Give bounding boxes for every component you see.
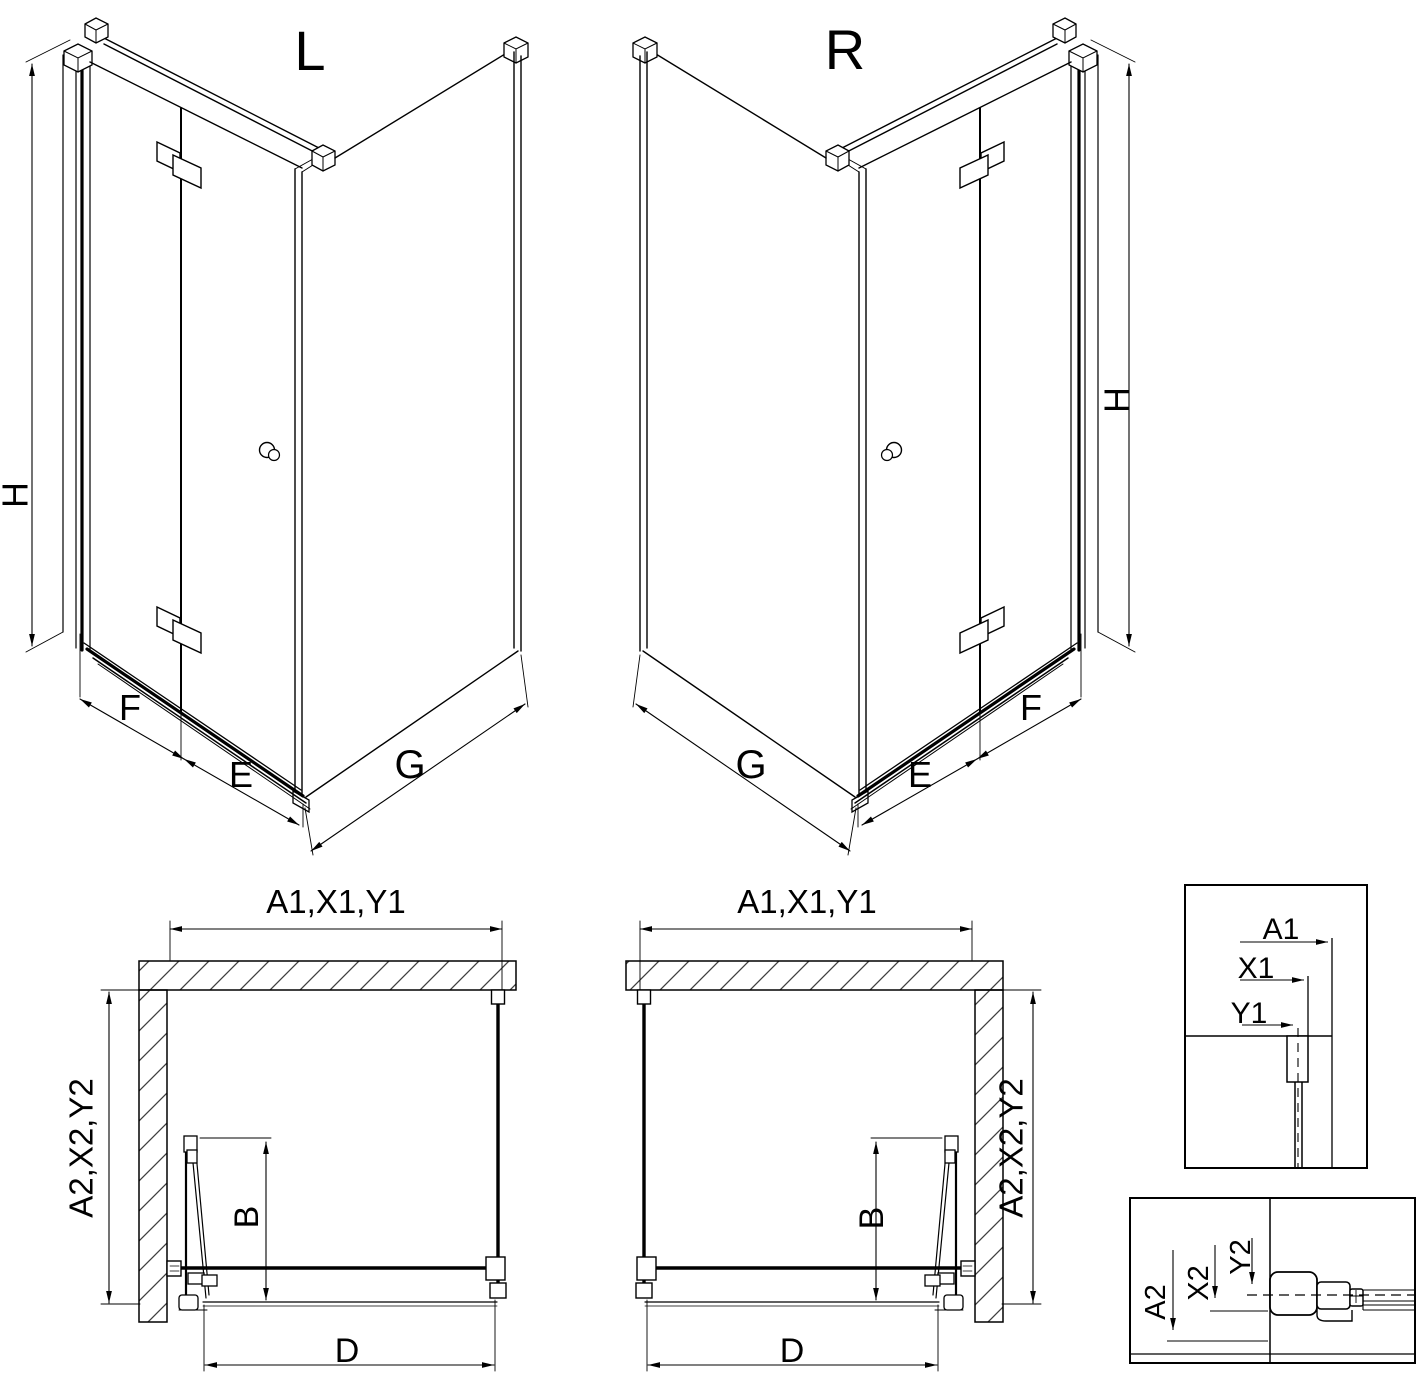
label-detail-y2: Y2 xyxy=(1225,1239,1257,1274)
label-entry-width-left: D xyxy=(335,1332,360,1370)
technical-drawing-page: L R H H F E G F E G A1,X1,Y1 A1,X1,Y1 A2… xyxy=(0,0,1426,1397)
label-door-leaf-left: F xyxy=(119,687,141,728)
label-door-projection-right: B xyxy=(853,1207,891,1230)
label-door-projection-left: B xyxy=(228,1206,266,1229)
label-detail-x1: X1 xyxy=(1238,952,1275,985)
label-detail-a1: A1 xyxy=(1263,913,1300,946)
label-plan-depth-left: A2,X2,Y2 xyxy=(63,1078,100,1217)
label-door-inner-left: E xyxy=(229,754,253,795)
label-door-inner-right: E xyxy=(908,754,932,795)
plan-right-top-wall xyxy=(626,961,1003,990)
label-entry-width-right: D xyxy=(780,1332,805,1370)
shower-enclosure-drawing: L R H H F E G F E G A1,X1,Y1 A1,X1,Y1 A2… xyxy=(0,0,1426,1397)
label-side-panel-left: G xyxy=(394,743,425,787)
detail-box-depth xyxy=(1130,1198,1415,1363)
label-plan-width-left: A1,X1,Y1 xyxy=(266,883,405,920)
label-height-left: H xyxy=(0,482,36,508)
label-detail-a2: A2 xyxy=(1140,1284,1172,1319)
bottom-profile-section xyxy=(1270,1272,1317,1315)
label-detail-x2: X2 xyxy=(1183,1265,1215,1300)
plan-left-side-wall xyxy=(139,990,167,1322)
iso-view-left-geometry xyxy=(26,18,528,855)
variant-left-title: L xyxy=(294,19,325,82)
label-plan-depth-right: A2,X2,Y2 xyxy=(993,1078,1030,1217)
iso-view-right-geometry xyxy=(633,18,1135,855)
label-height-right: H xyxy=(1097,387,1138,413)
label-door-leaf-right: F xyxy=(1020,687,1042,728)
variant-right-title: R xyxy=(825,18,865,81)
labels: L R H H F E G F E G A1,X1,Y1 A1,X1,Y1 A2… xyxy=(0,18,1299,1370)
label-side-panel-right: G xyxy=(735,743,766,787)
plan-left-top-wall xyxy=(139,961,516,990)
label-detail-y1: Y1 xyxy=(1231,997,1268,1030)
label-plan-width-right: A1,X1,Y1 xyxy=(737,883,876,920)
